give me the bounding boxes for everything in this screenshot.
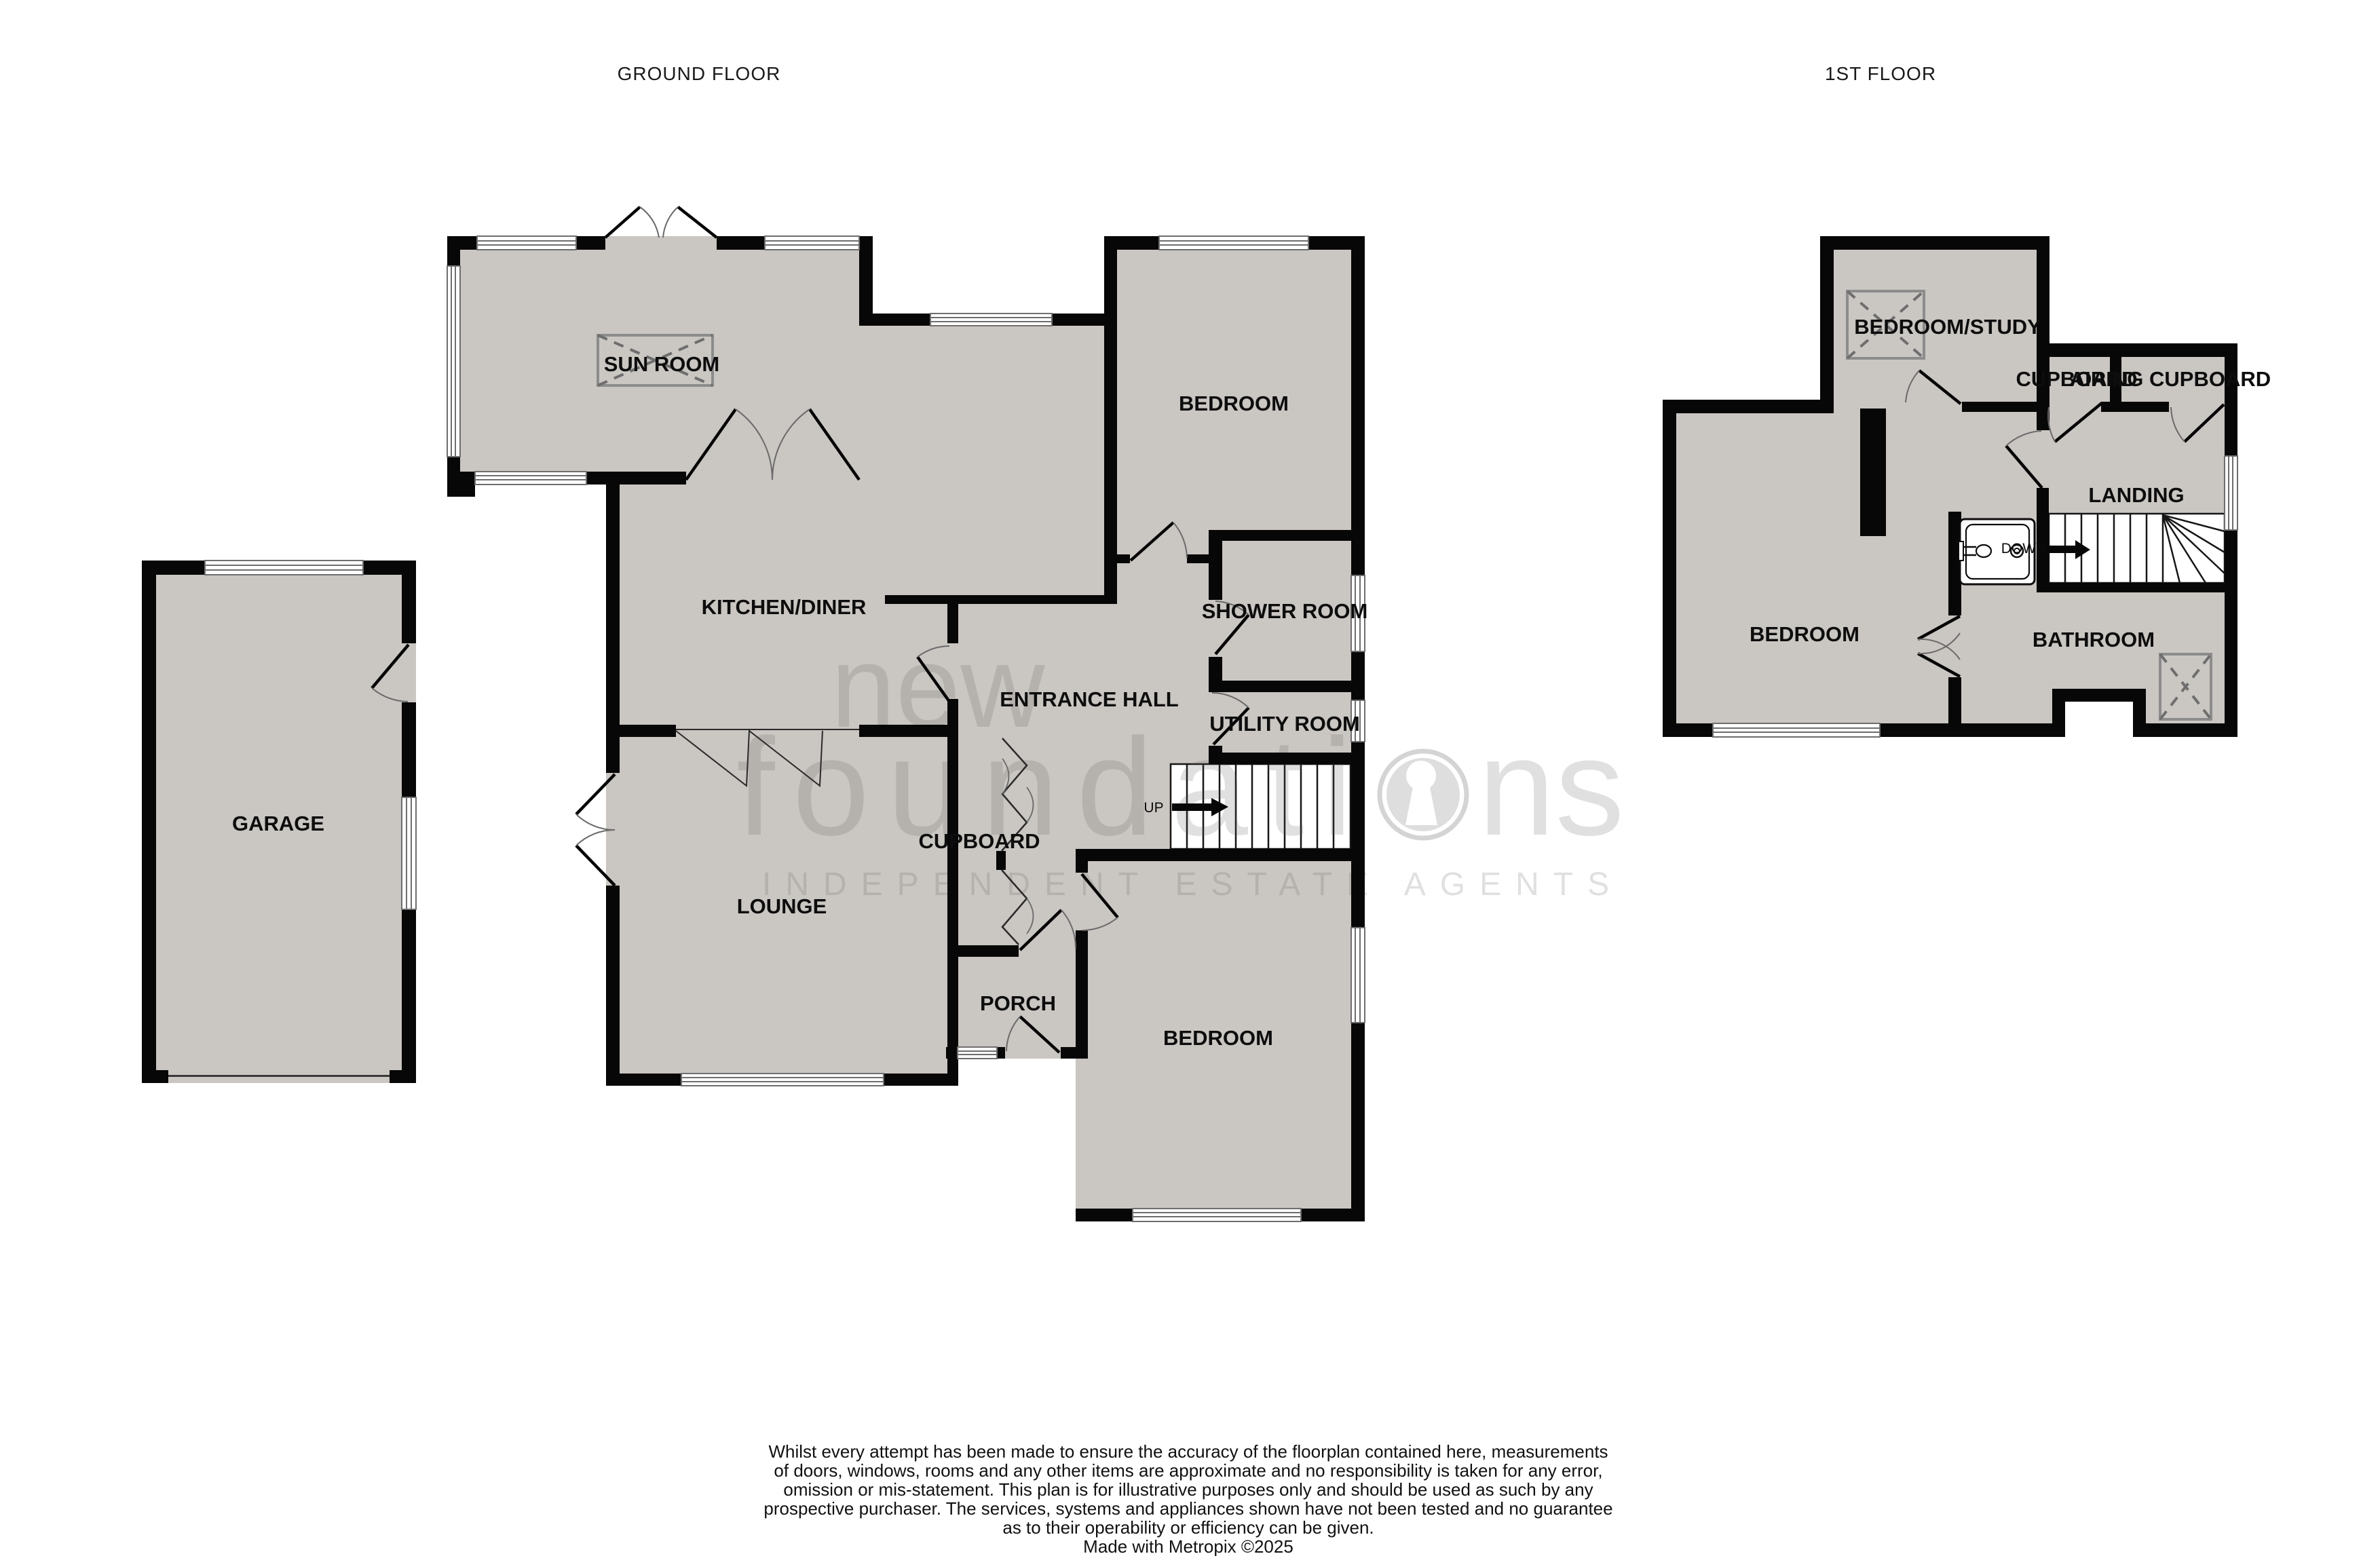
svg-text:BEDROOM: BEDROOM bbox=[1750, 622, 1859, 646]
svg-text:GROUND FLOOR: GROUND FLOOR bbox=[618, 63, 781, 84]
svg-text:CUPBOARD: CUPBOARD bbox=[918, 829, 1040, 853]
svg-text:SHOWER ROOM: SHOWER ROOM bbox=[1202, 599, 1368, 623]
svg-text:BEDROOM: BEDROOM bbox=[1179, 392, 1289, 415]
svg-text:Made with Metropix ©2025: Made with Metropix ©2025 bbox=[1083, 1536, 1293, 1556]
svg-text:Whilst every attempt has been: Whilst every attempt has been made to en… bbox=[768, 1441, 1608, 1462]
svg-text:AIRING CUPBOARD: AIRING CUPBOARD bbox=[2070, 367, 2271, 391]
svg-text:omission or mis-statement. Thi: omission or mis-statement. This plan is … bbox=[783, 1479, 1593, 1500]
svg-text:prospective purchaser. The ser: prospective purchaser. The services, sys… bbox=[763, 1498, 1612, 1519]
svg-text:BATHROOM: BATHROOM bbox=[2033, 628, 2155, 651]
svg-text:INDEPENDENT ESTATE AGENTS: INDEPENDENT ESTATE AGENTS bbox=[762, 867, 1623, 903]
svg-text:DOWN: DOWN bbox=[2001, 541, 2047, 556]
svg-text:BEDROOM: BEDROOM bbox=[1163, 1026, 1273, 1050]
svg-text:as to their operability or eff: as to their operability or efficiency ca… bbox=[1002, 1517, 1374, 1538]
svg-text:KITCHEN/DINER: KITCHEN/DINER bbox=[702, 595, 867, 619]
svg-text:ns: ns bbox=[1478, 710, 1624, 865]
svg-text:1ST FLOOR: 1ST FLOOR bbox=[1825, 63, 1936, 84]
svg-text:of doors, windows, rooms and a: of doors, windows, rooms and any other i… bbox=[774, 1460, 1602, 1481]
svg-text:UP: UP bbox=[1144, 800, 1163, 816]
svg-text:PORCH: PORCH bbox=[980, 991, 1056, 1015]
svg-text:LOUNGE: LOUNGE bbox=[737, 894, 827, 918]
svg-text:LANDING: LANDING bbox=[2088, 483, 2184, 507]
svg-text:UTILITY ROOM: UTILITY ROOM bbox=[1209, 712, 1360, 736]
svg-text:BEDROOM/STUDY: BEDROOM/STUDY bbox=[1854, 315, 2041, 339]
svg-text:ENTRANCE HALL: ENTRANCE HALL bbox=[1000, 687, 1179, 711]
svg-text:SUN ROOM: SUN ROOM bbox=[604, 352, 720, 376]
svg-text:GARAGE: GARAGE bbox=[232, 812, 324, 835]
